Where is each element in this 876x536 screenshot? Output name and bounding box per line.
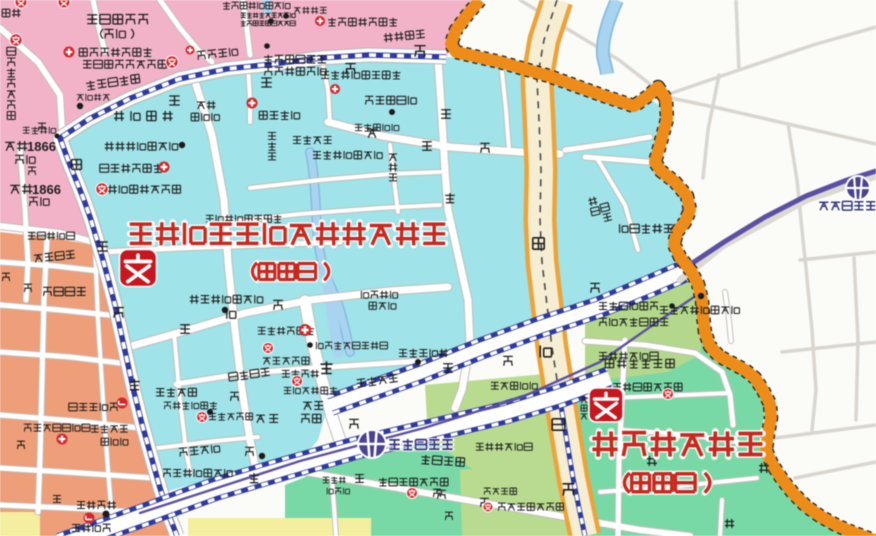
svg-text:1866: 1866: [32, 182, 61, 197]
svg-text:1866: 1866: [27, 139, 56, 154]
